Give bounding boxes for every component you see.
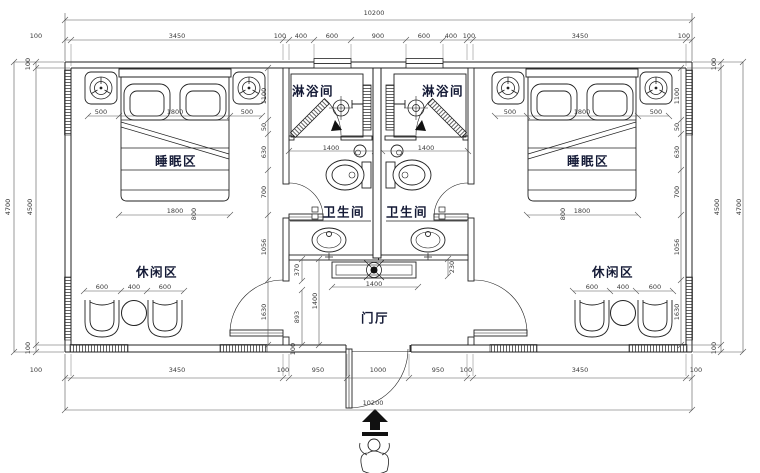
entrance-door	[346, 345, 410, 408]
floor-plan-drawing: 淋浴间淋浴间睡眠区睡眠区卫生间卫生间休闲区休闲区门厅10200100345010…	[0, 0, 760, 473]
floor-plan-canvas	[0, 0, 760, 473]
center-wall	[373, 68, 381, 258]
entrance-person-icon	[360, 409, 390, 473]
entrance-arrow-icon	[362, 409, 388, 430]
center-core	[332, 68, 416, 473]
left-guest-unit	[65, 59, 379, 353]
right-guest-unit	[379, 59, 693, 353]
